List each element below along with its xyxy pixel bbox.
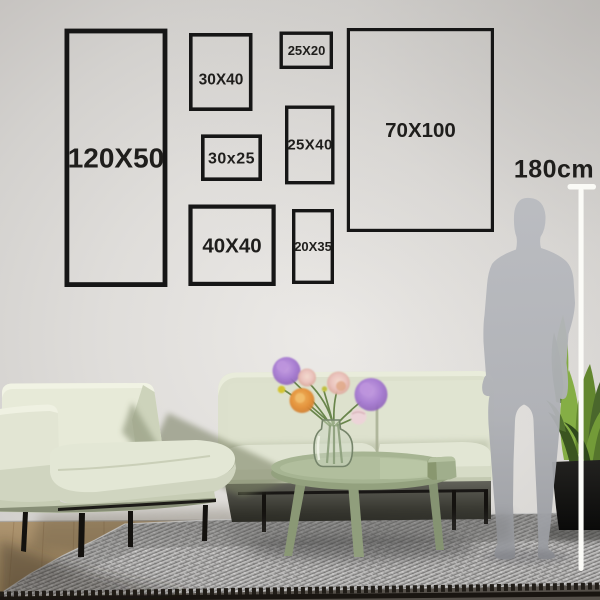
svg-text:25X20: 25X20: [288, 43, 326, 58]
svg-text:30x25: 30x25: [208, 151, 255, 168]
svg-text:20X35: 20X35: [294, 239, 332, 254]
svg-text:180cm: 180cm: [514, 156, 594, 184]
svg-text:70X100: 70X100: [385, 119, 456, 142]
svg-text:30X40: 30X40: [199, 71, 244, 88]
svg-text:120X50: 120X50: [68, 143, 165, 174]
svg-text:25X40: 25X40: [287, 137, 332, 154]
svg-text:40X40: 40X40: [202, 235, 261, 258]
